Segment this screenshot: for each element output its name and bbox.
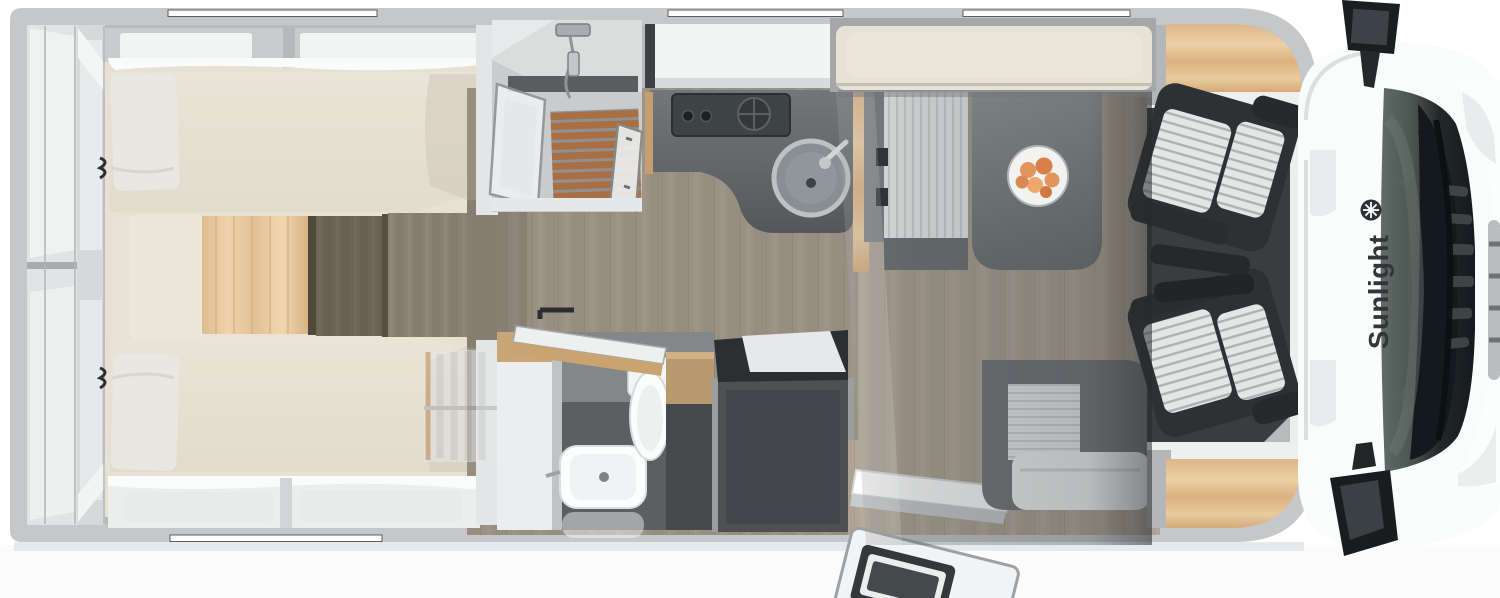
svg-text:Sunlight: Sunlight (1363, 234, 1394, 349)
